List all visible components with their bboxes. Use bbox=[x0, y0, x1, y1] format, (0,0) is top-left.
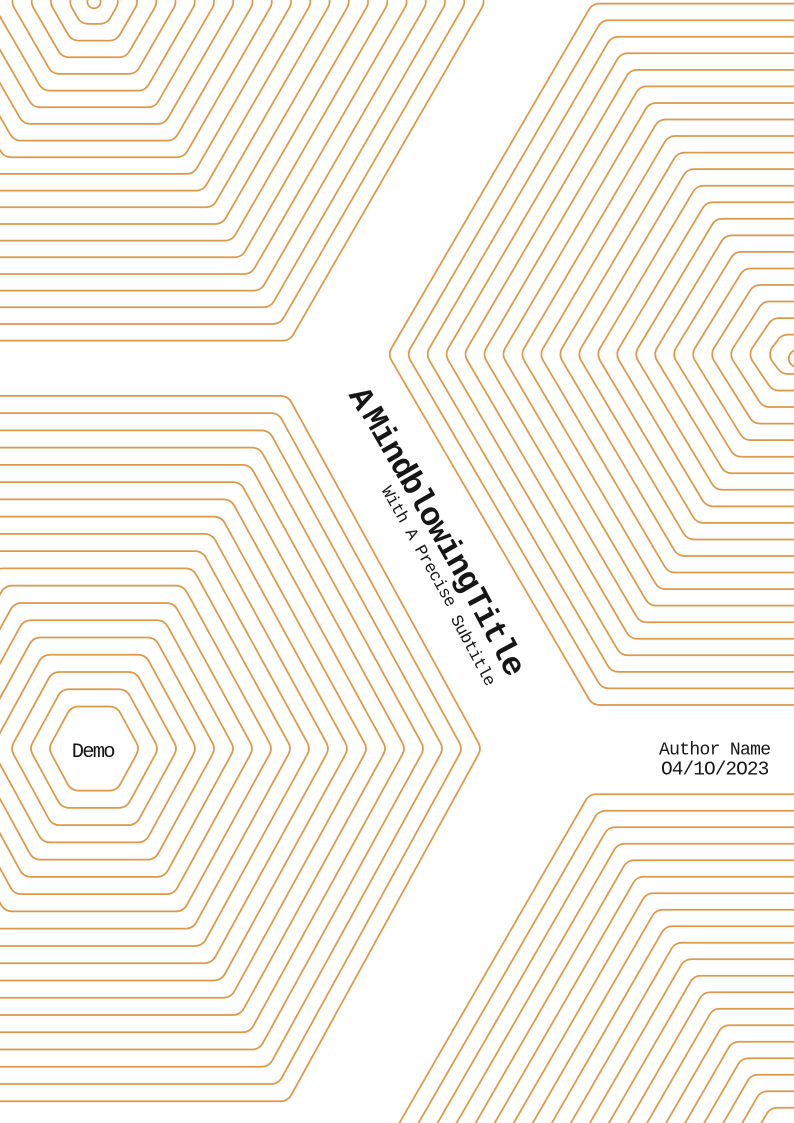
svg-text:Demo: Demo bbox=[72, 741, 115, 764]
svg-text:O4/1O/2O23: O4/1O/2O23 bbox=[661, 759, 769, 781]
svg-text:Author Name: Author Name bbox=[659, 741, 770, 761]
